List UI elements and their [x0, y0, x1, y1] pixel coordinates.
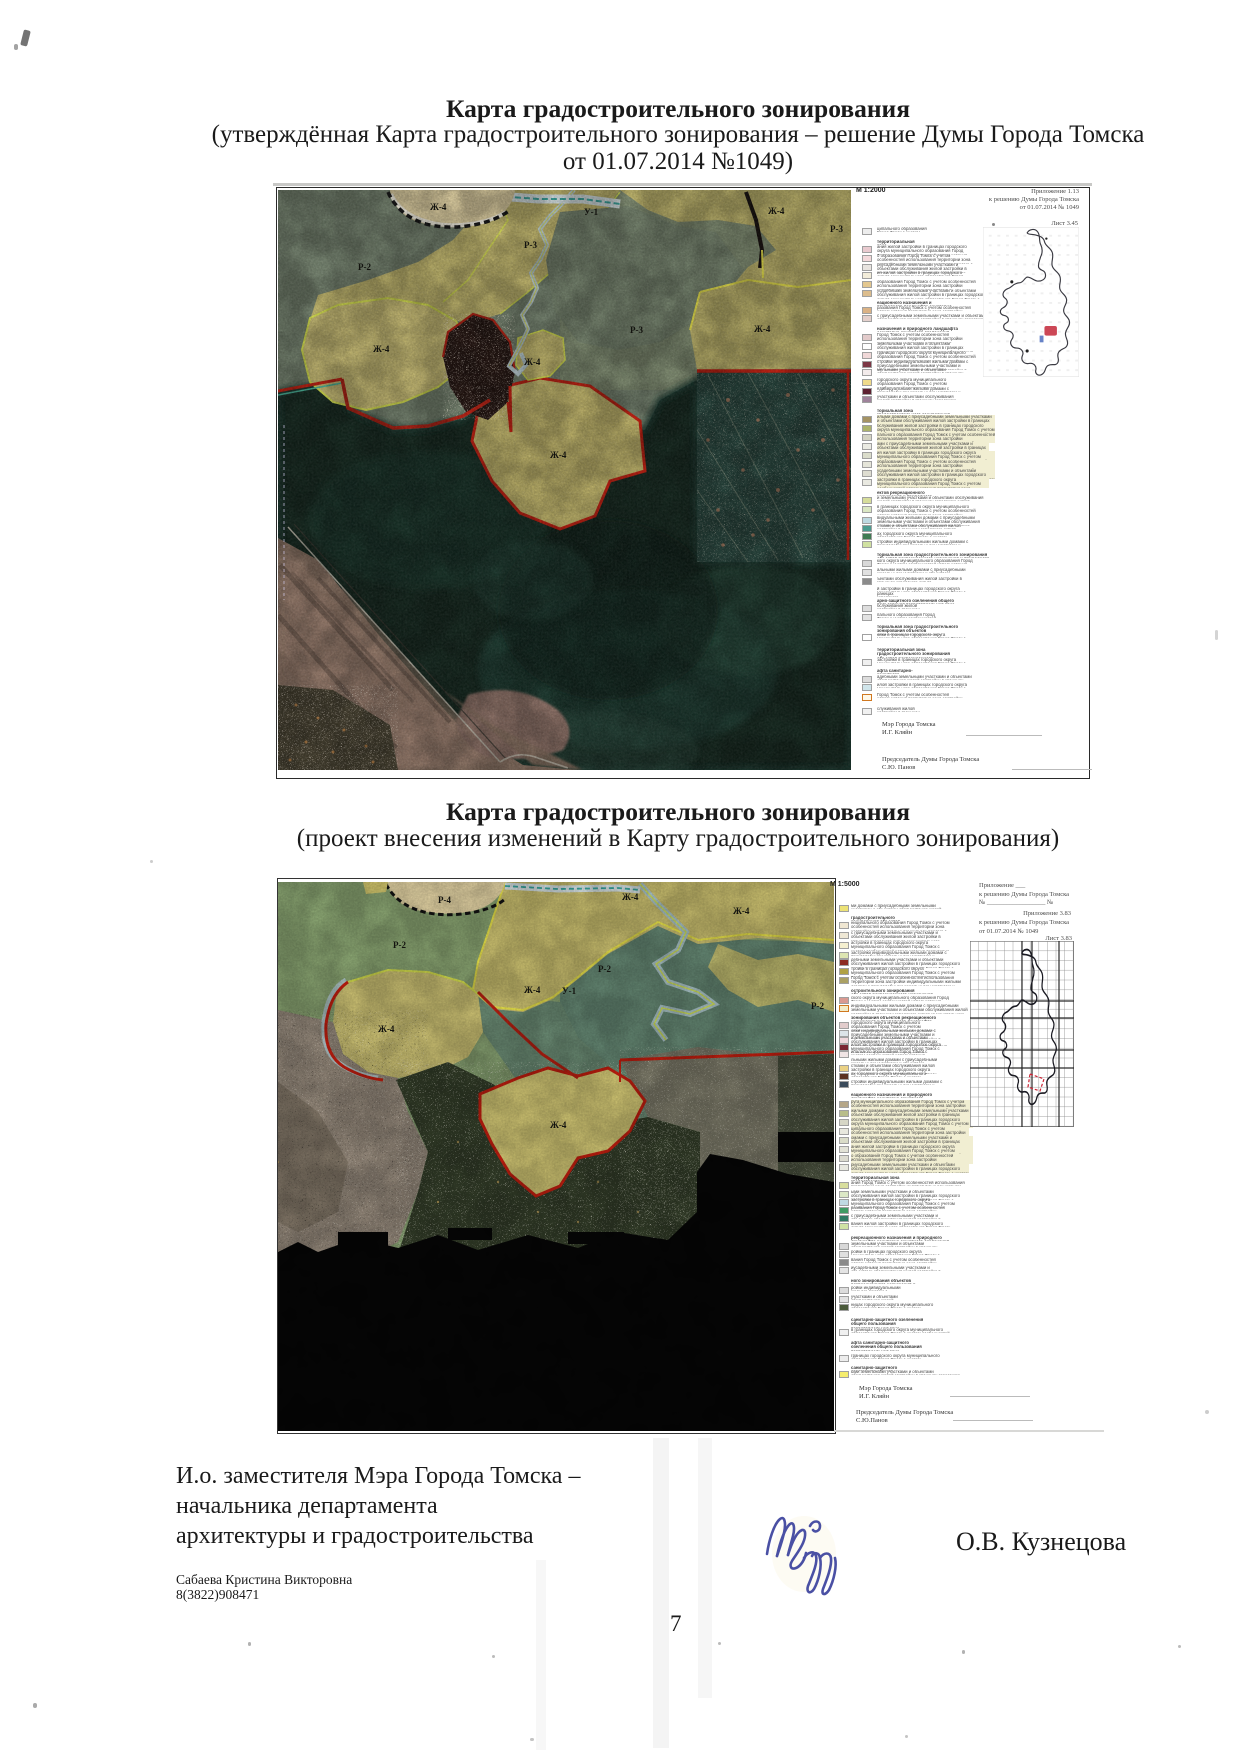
svg-text:Р-4: Р-4 [438, 895, 451, 905]
svg-text:У-1: У-1 [584, 207, 599, 217]
svg-text:Р-3: Р-3 [630, 325, 643, 335]
svg-text:Ж-4: Ж-4 [754, 324, 771, 334]
svg-text:Ж-4: Ж-4 [550, 1120, 567, 1130]
svg-text:Ж-4: Ж-4 [378, 1024, 395, 1034]
svg-text:Р-3: Р-3 [524, 240, 537, 250]
svg-text:Ж-4: Ж-4 [524, 357, 541, 367]
svg-text:Ж-4: Ж-4 [430, 202, 447, 212]
svg-text:Р-2: Р-2 [811, 1001, 824, 1011]
svg-text:Р-2: Р-2 [393, 940, 406, 950]
svg-text:Ж-4: Ж-4 [524, 985, 541, 995]
svg-text:Ж-4: Ж-4 [733, 906, 750, 916]
svg-text:Ж-4: Ж-4 [550, 450, 567, 460]
svg-text:У-1: У-1 [562, 986, 577, 996]
svg-text:Р-2: Р-2 [598, 964, 611, 974]
svg-text:Р-2: Р-2 [358, 262, 371, 272]
svg-text:Ж-4: Ж-4 [768, 206, 785, 216]
svg-text:Ж-4: Ж-4 [622, 892, 639, 902]
svg-text:Р-3: Р-3 [830, 224, 843, 234]
svg-text:Ж-4: Ж-4 [373, 344, 390, 354]
